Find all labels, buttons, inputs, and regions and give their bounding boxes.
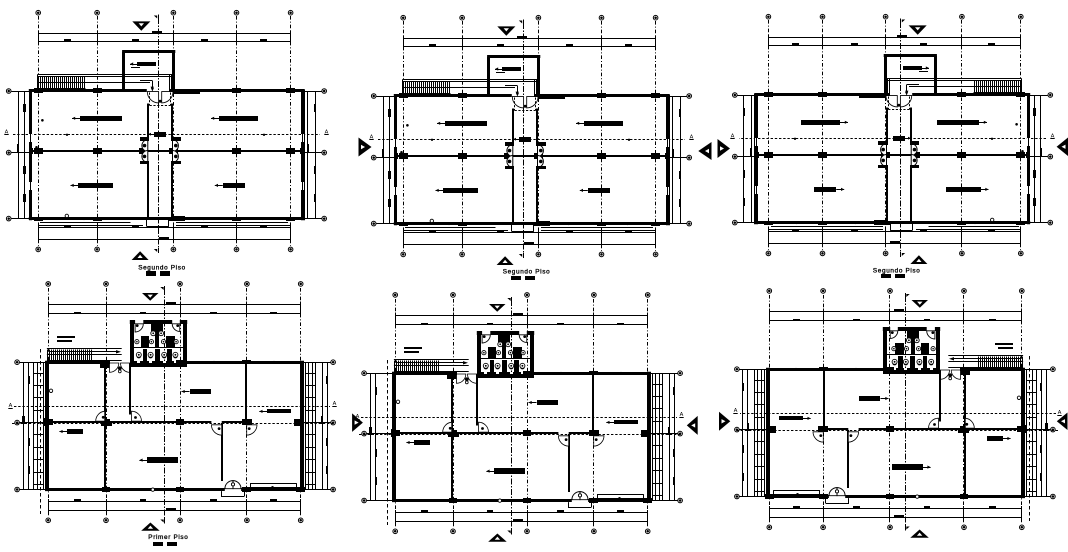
svg-text:Segundo Piso: Segundo Piso <box>873 267 921 274</box>
svg-text:Primer Piso: Primer Piso <box>148 534 188 541</box>
svg-text:Segundo Piso: Segundo Piso <box>138 265 186 272</box>
svg-text:Segundo Piso: Segundo Piso <box>503 268 551 275</box>
